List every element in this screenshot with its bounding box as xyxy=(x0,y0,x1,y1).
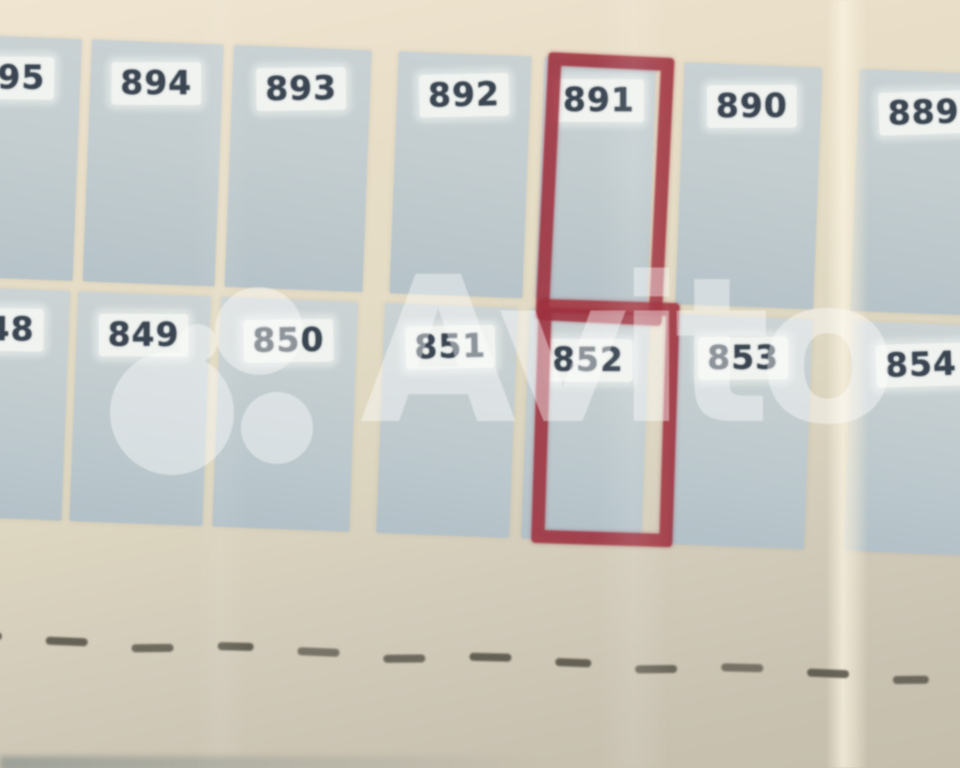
photo-light-sheen xyxy=(0,0,960,768)
plot-map-photo: 895894893892891890889 848849850851852853… xyxy=(0,0,960,768)
photo-content: 895894893892891890889 848849850851852853… xyxy=(0,0,960,768)
photo-bottom-edge-shadow xyxy=(0,756,540,768)
